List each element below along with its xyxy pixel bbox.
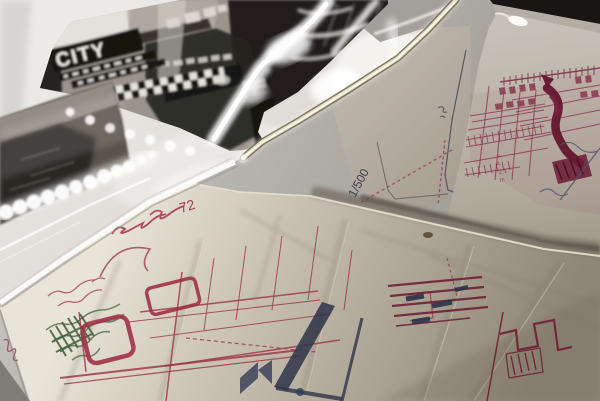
svg-text:m: m bbox=[499, 177, 505, 184]
